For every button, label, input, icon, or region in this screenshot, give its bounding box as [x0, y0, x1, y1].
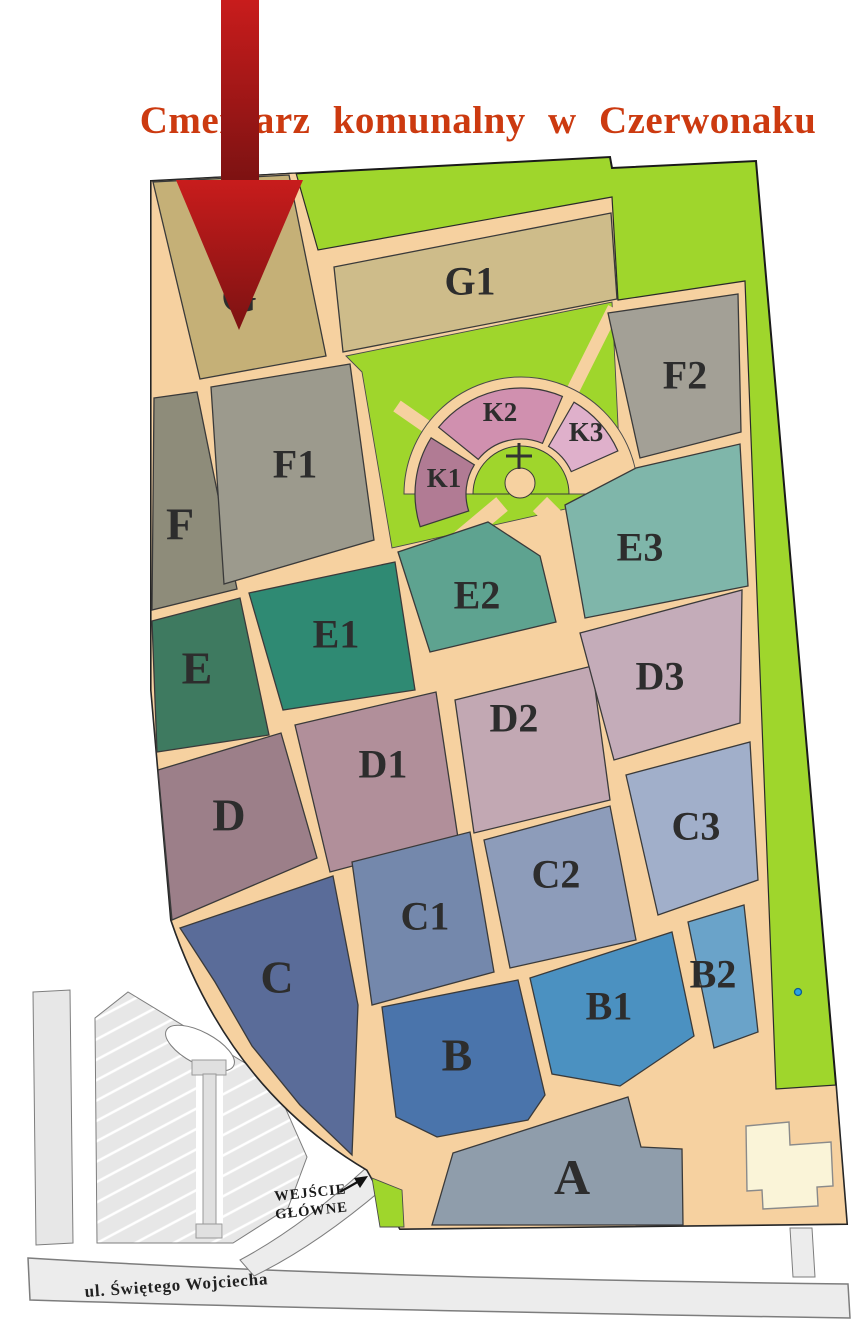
parking-column-cap [192, 1060, 226, 1075]
section-E1-label: E1 [313, 612, 360, 657]
section-D2-label: D2 [490, 696, 539, 741]
section-E2-label: E2 [454, 573, 501, 618]
water-point-marker [795, 989, 802, 996]
section-C2-label: C2 [532, 852, 581, 897]
section-E-label: E [182, 643, 213, 694]
map-built-layers: K1K2K3GG1FF1F2EE1E2E3DD1D2D3CC1C2C3BB1B2… [28, 0, 850, 1318]
locator-arrow-shaft [221, 0, 259, 183]
parking-strip [33, 990, 73, 1245]
section-G1-label: G1 [444, 259, 495, 304]
section-C-label: C [260, 952, 293, 1003]
section-D-label: D [212, 790, 245, 841]
section-C1-label: C1 [401, 894, 450, 939]
section-F-label: F [166, 499, 194, 550]
section-D1-label: D1 [359, 742, 408, 787]
rotunda-center-circle [505, 468, 535, 498]
section-K2-label: K2 [483, 397, 518, 427]
road-connector [790, 1228, 815, 1277]
section-A-label: A [554, 1149, 590, 1205]
parking-column-foot [196, 1224, 222, 1238]
section-F1-label: F1 [273, 442, 317, 487]
cemetery-map: Cmentarz komunalny w Czerwonaku K1K2K3GG… [0, 0, 853, 1331]
section-C3-label: C3 [672, 804, 721, 849]
cemetery-map-page: Cmentarz komunalny w Czerwonaku K1K2K3GG… [0, 0, 853, 1331]
section-K3-label: K3 [569, 417, 604, 447]
section-B2-label: B2 [690, 952, 737, 997]
section-E3-label: E3 [617, 525, 664, 570]
section-K1-label: K1 [427, 463, 462, 493]
section-D3-label: D3 [636, 654, 685, 699]
section-F2-label: F2 [663, 353, 707, 398]
section-B-label: B [442, 1030, 473, 1081]
parking-column-stem [203, 1074, 216, 1226]
section-B1-label: B1 [586, 984, 633, 1029]
